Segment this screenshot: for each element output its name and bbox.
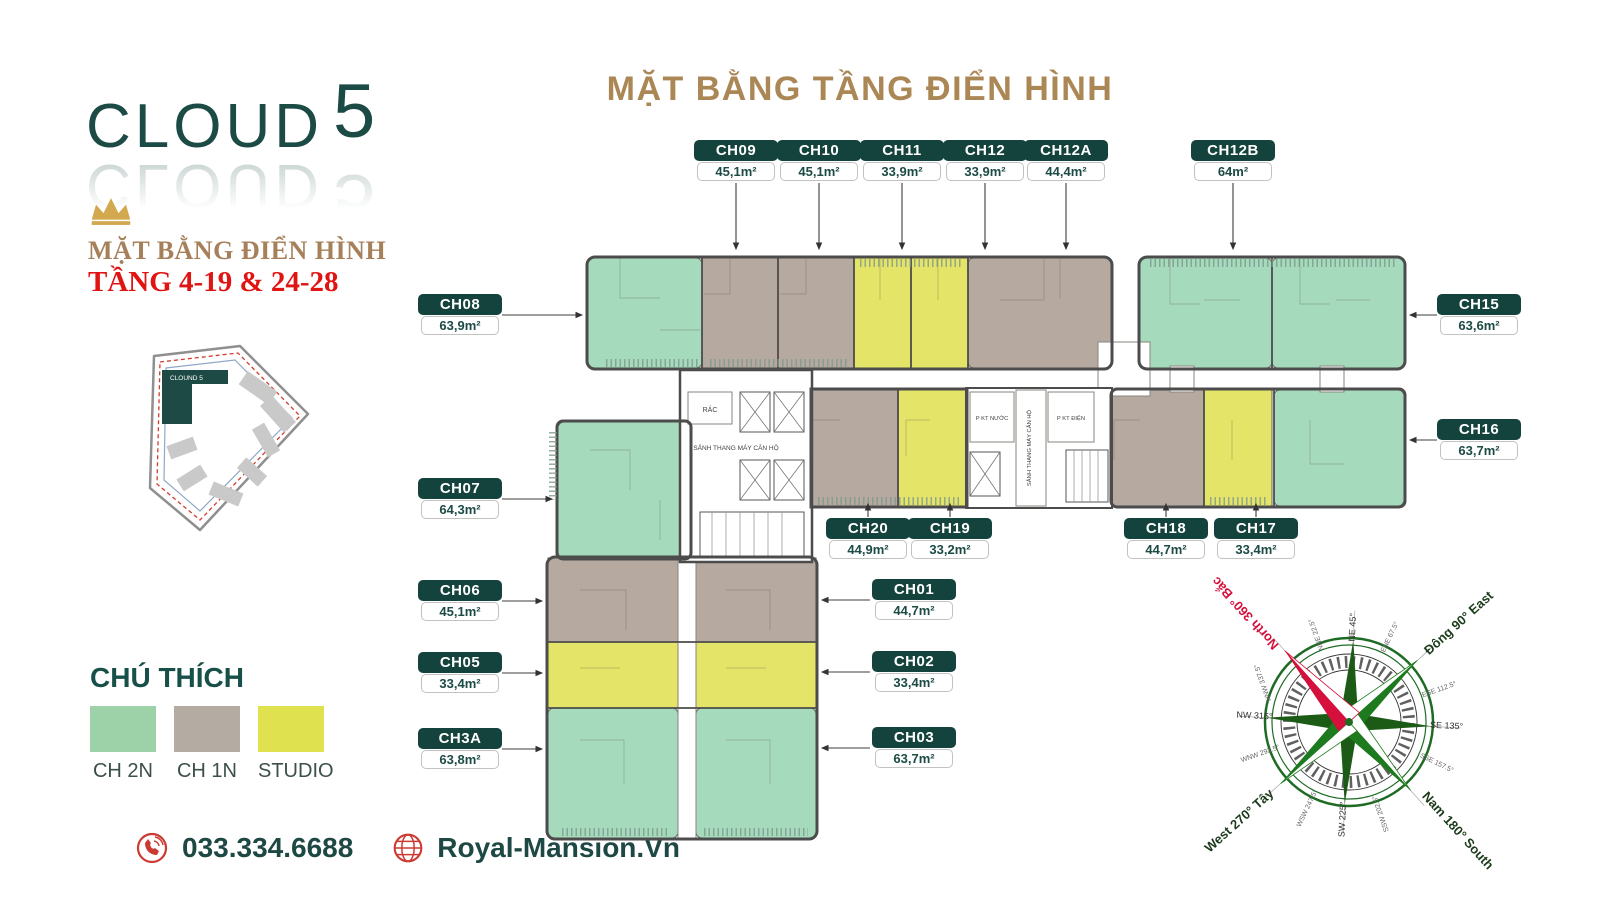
unit-ch08 <box>588 258 702 368</box>
callout-ch07: CH0764,3m² <box>418 478 502 519</box>
unit-ch12 <box>911 258 968 368</box>
core-lobby-label: SẢNH THANG MÁY CĂN HỘ <box>693 443 778 452</box>
callout-ch18: CH1844,7m² <box>1124 518 1208 559</box>
floor-plan: CLOUND 5 <box>0 0 1600 900</box>
callout-ch3a: CH3A63,8m² <box>418 728 502 769</box>
callout-ch06: CH0645,1m² <box>418 580 502 621</box>
unit-ch01 <box>696 558 816 642</box>
unit-ch20 <box>812 390 898 506</box>
inset-building-label: CLOUND 5 <box>170 375 203 382</box>
svg-text:SE 135°: SE 135° <box>1430 720 1464 732</box>
unit-ch05 <box>548 642 678 708</box>
compass-east-label: Đông 90° East <box>1421 587 1497 657</box>
callout-ch11: CH1133,9m² <box>860 140 944 181</box>
svg-text:SW 225°: SW 225° <box>1336 801 1348 837</box>
compass-north-label: North 360° Bắc <box>1209 574 1282 653</box>
unit-ch16 <box>1274 390 1404 506</box>
brochure-page: MẶT BẰNG TẦNG ĐIỂN HÌNH CLOUD5 CLOUD5 MẶ… <box>0 0 1600 900</box>
unit-ch19 <box>898 390 966 506</box>
unit-ch10 <box>778 258 854 368</box>
svg-text:NW 315°: NW 315° <box>1236 710 1273 722</box>
site-plan-inset: CLOUND 5 <box>150 346 308 530</box>
middle-band <box>812 390 966 506</box>
tech-zone: P KT NƯỚC SẢNH THANG MÁY CĂN HỘ P KT ĐIỆ… <box>966 388 1112 508</box>
callout-ch09: CH0945,1m² <box>694 140 778 181</box>
callout-ch01: CH0144,7m² <box>872 579 956 620</box>
unit-ch07 <box>558 422 690 558</box>
compass-rose: North 360° Bắc Đông 90° East Nam 180° So… <box>1075 447 1600 900</box>
unit-ch12b <box>1140 258 1272 368</box>
core-trash-label: RÁC <box>703 405 718 414</box>
callout-ch03: CH0363,7m² <box>872 727 956 768</box>
unit-ch12a <box>968 258 1112 368</box>
unit-ch06 <box>548 558 678 642</box>
unit-ch03 <box>696 708 816 838</box>
callout-ch12b: CH12B64m² <box>1191 140 1275 181</box>
callout-ch20: CH2044,9m² <box>826 518 910 559</box>
callout-ch02: CH0233,4m² <box>872 651 956 692</box>
left-wing-corridor <box>678 558 696 838</box>
core-block: RÁC SẢNH THANG MÁY CĂN HỘ <box>680 370 812 562</box>
svg-text:NE 45°: NE 45° <box>1347 612 1359 641</box>
vertical-lobby-label: SẢNH THANG MÁY CĂN HỘ <box>1026 409 1033 486</box>
unit-ch11 <box>854 258 911 368</box>
unit-ch09 <box>702 258 778 368</box>
right-wing <box>1098 258 1404 506</box>
unit-ch02 <box>696 642 816 708</box>
compass-west-label: West 270° Tây <box>1201 785 1277 855</box>
unit-ch15 <box>1272 258 1404 368</box>
unit-ch3a <box>548 708 678 838</box>
callout-ch19: CH1933,2m² <box>908 518 992 559</box>
callout-ch12: CH1233,9m² <box>943 140 1027 181</box>
electric-room-label: P KT ĐIỆN <box>1057 414 1085 422</box>
svg-text:NNW 337.5°: NNW 337.5° <box>1252 663 1273 703</box>
callout-ch05: CH0533,4m² <box>418 652 502 693</box>
unit-ch17 <box>1204 390 1272 506</box>
top-band <box>588 258 1112 368</box>
water-room-label: P KT NƯỚC <box>976 415 1009 422</box>
svg-text:SSE 157.5°: SSE 157.5° <box>1419 752 1455 775</box>
callout-ch17: CH1733,4m² <box>1214 518 1298 559</box>
callout-ch10: CH1045,1m² <box>777 140 861 181</box>
callout-ch12a: CH12A44,4m² <box>1024 140 1108 181</box>
callout-ch16: CH1663,7m² <box>1437 419 1521 460</box>
callout-ch15: CH1563,6m² <box>1437 294 1521 335</box>
unit-ch18 <box>1112 390 1204 506</box>
callout-ch08: CH0863,9m² <box>418 294 502 335</box>
compass-south-label: Nam 180° South <box>1419 789 1497 873</box>
